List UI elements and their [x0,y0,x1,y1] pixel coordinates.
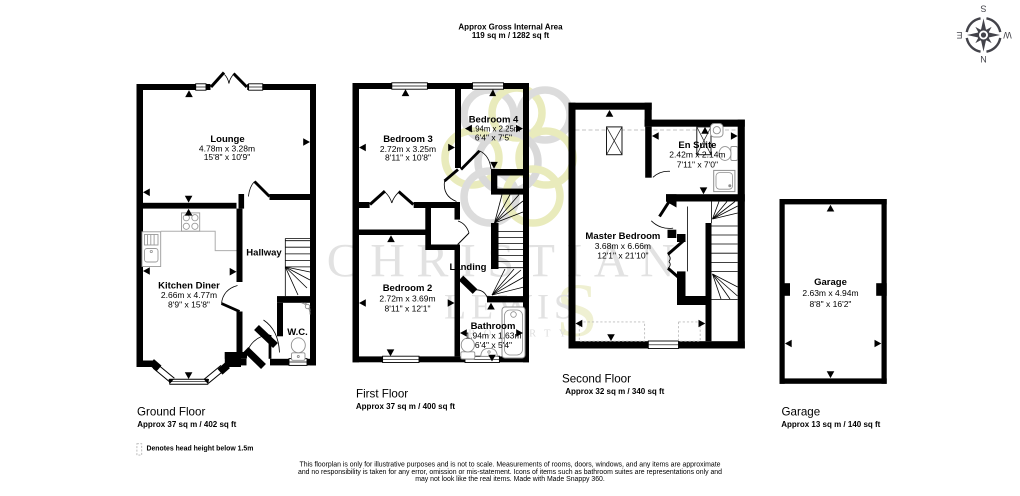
svg-text:8'11" x 12'1": 8'11" x 12'1" [385,303,431,313]
svg-text:8'8" x 16'2": 8'8" x 16'2" [810,299,852,309]
svg-text:Approx 32 sq m / 340 sq ft: Approx 32 sq m / 340 sq ft [565,387,664,396]
svg-text:Garage: Garage [782,405,821,418]
svg-text:Hallway: Hallway [246,247,282,258]
svg-text:1.94m x 1.63m: 1.94m x 1.63m [465,331,521,341]
svg-text:2.42m x 2.14m: 2.42m x 2.14m [669,150,725,160]
svg-text:8'9" x 15'8": 8'9" x 15'8" [168,300,210,310]
svg-text:Approx 37 sq m / 400 sq ft: Approx 37 sq m / 400 sq ft [356,402,455,411]
svg-text:8'11" x 10'8": 8'11" x 10'8" [385,153,431,163]
svg-text:N: N [980,54,987,64]
svg-text:First Floor: First Floor [356,387,408,400]
svg-text:119 sq m / 1282 sq ft: 119 sq m / 1282 sq ft [472,31,550,40]
svg-text:12'1" x 21'10": 12'1" x 21'10" [597,251,648,261]
svg-text:2.72m x 3.69m: 2.72m x 3.69m [379,293,435,303]
svg-text:7'11" x 7'0": 7'11" x 7'0" [677,159,718,169]
svg-text:Bedroom 2: Bedroom 2 [383,283,433,294]
svg-text:Garage: Garage [814,277,847,288]
svg-text:Approx 13 sq m / 140 sq ft: Approx 13 sq m / 140 sq ft [781,420,880,429]
svg-text:W.C.: W.C. [287,327,308,338]
svg-text:Landing: Landing [450,262,487,273]
svg-text:This floorplan is only for ill: This floorplan is only for illustrative … [300,462,721,469]
svg-text:6'4" x 5'4": 6'4" x 5'4" [475,340,512,350]
svg-text:2.63m x 4.94m: 2.63m x 4.94m [802,288,858,298]
svg-text:15'8" x 10'9": 15'8" x 10'9" [204,152,251,162]
svg-text:may not look like the real ite: may not look like the real items. Made w… [415,476,605,483]
svg-text:and no responsibility is taken: and no responsibility is taken for any e… [298,469,722,476]
svg-text:Ground Floor: Ground Floor [137,405,205,418]
svg-text:S: S [980,4,986,14]
svg-text:Denotes head height below 1.5m: Denotes head height below 1.5m [147,445,254,452]
svg-text:W: W [1003,30,1012,40]
svg-text:6'4" x 7'5": 6'4" x 7'5" [475,132,512,142]
svg-text:E: E [956,30,962,40]
svg-text:Approx 37 sq m / 402 sq ft: Approx 37 sq m / 402 sq ft [137,420,236,429]
svg-text:Second Floor: Second Floor [562,372,631,385]
